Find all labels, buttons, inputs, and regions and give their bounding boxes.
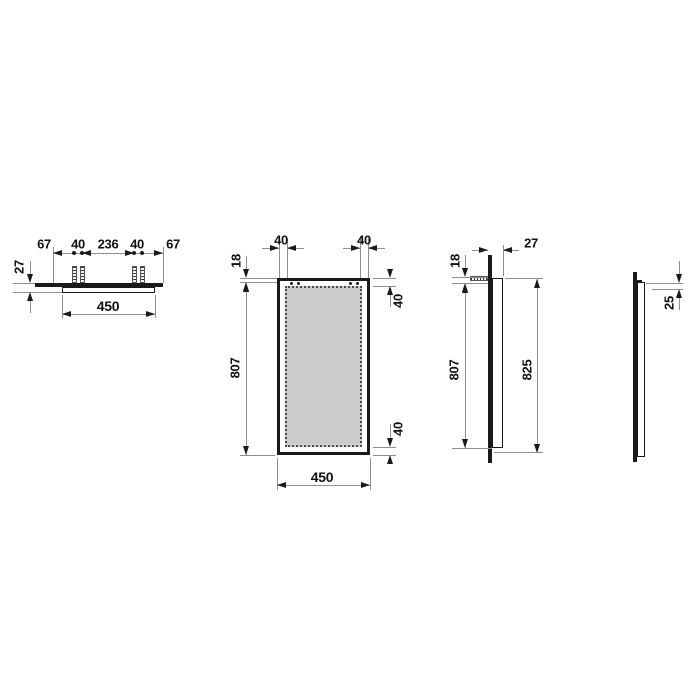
backframe-outline xyxy=(637,282,645,457)
technical-drawing-canvas: 67 40 236 40 67 27 450 xyxy=(0,0,700,700)
arrowhead xyxy=(676,274,682,283)
profile-view: 25 xyxy=(0,0,700,500)
dimension-line xyxy=(679,261,680,274)
extension-line xyxy=(646,283,683,284)
dim-label-frame-inset: 25 xyxy=(662,296,677,310)
dimension-line xyxy=(679,298,680,310)
arrowhead xyxy=(676,289,682,298)
